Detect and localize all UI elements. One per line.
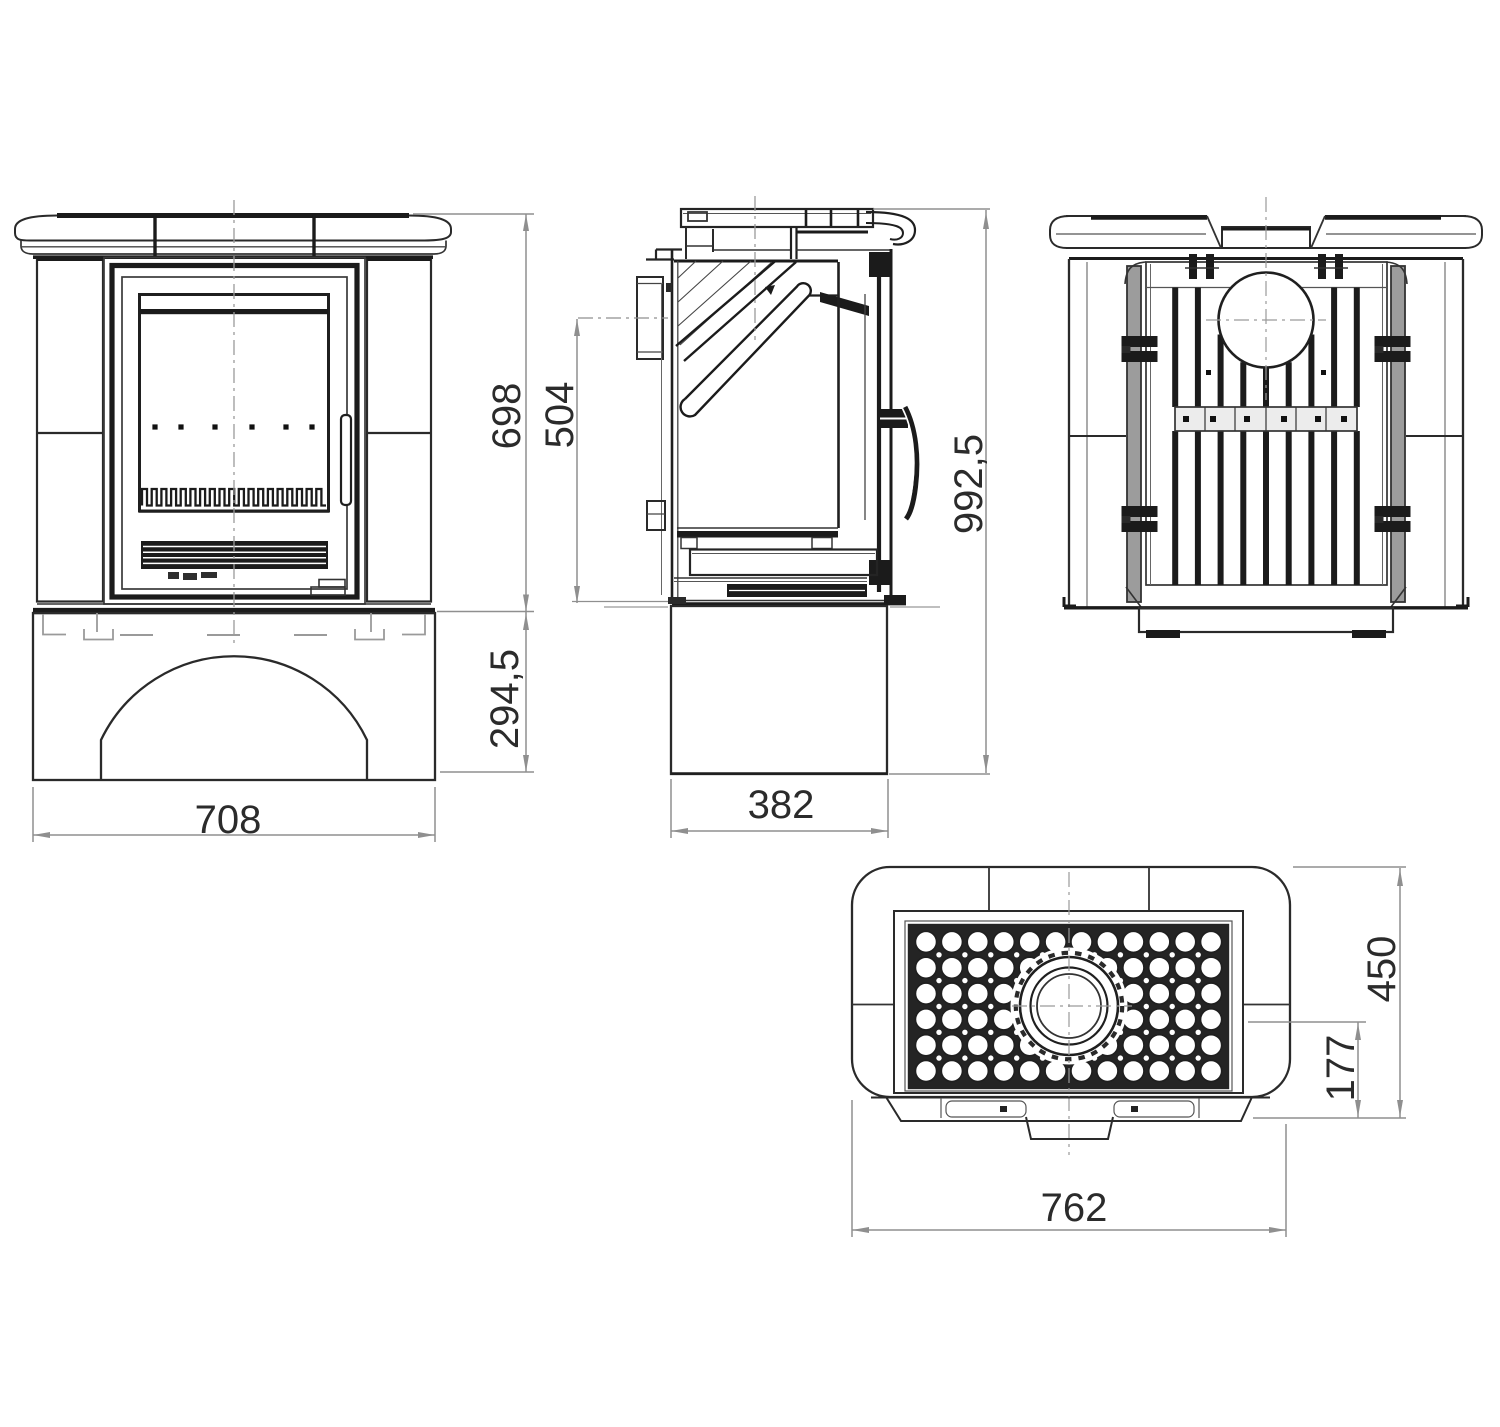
svg-text:177: 177 <box>1319 1035 1363 1102</box>
svg-text:382: 382 <box>748 783 815 827</box>
svg-text:504: 504 <box>538 382 582 449</box>
svg-text:708: 708 <box>195 798 262 842</box>
svg-text:450: 450 <box>1360 936 1404 1003</box>
svg-text:698: 698 <box>485 383 529 450</box>
svg-text:762: 762 <box>1041 1186 1108 1230</box>
svg-text:992,5: 992,5 <box>947 434 991 534</box>
svg-text:294,5: 294,5 <box>483 649 527 749</box>
